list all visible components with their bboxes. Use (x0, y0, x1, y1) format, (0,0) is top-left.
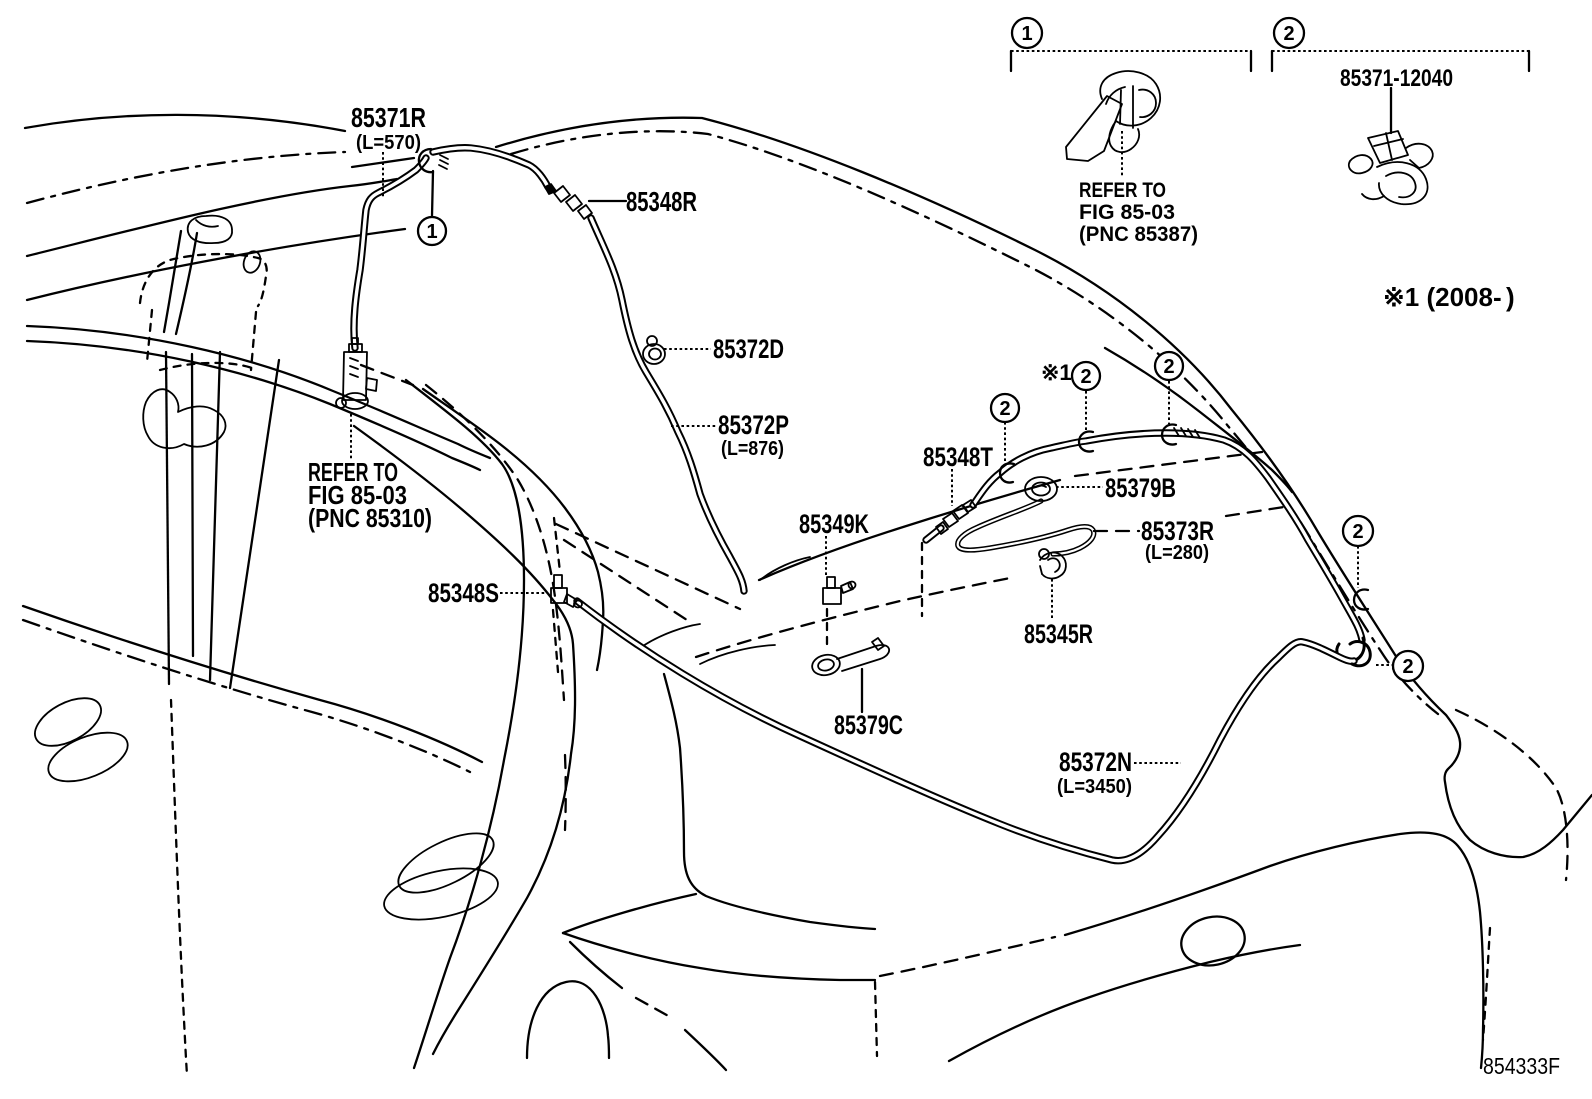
svg-text:): ) (1506, 282, 1515, 312)
svg-text:REFER TO: REFER TO (1079, 179, 1166, 202)
svg-text:85371R: 85371R (351, 102, 426, 133)
svg-text:2: 2 (999, 398, 1010, 420)
svg-text:※1: ※1 (1041, 360, 1072, 385)
svg-text:85372D: 85372D (713, 334, 784, 364)
svg-text:85371-12040: 85371-12040 (1340, 65, 1453, 92)
svg-text:85379B: 85379B (1105, 473, 1176, 503)
svg-text:85348R: 85348R (626, 186, 697, 217)
svg-text:854333F: 854333F (1483, 1053, 1560, 1079)
svg-text:85372P: 85372P (718, 410, 789, 440)
svg-text:85348T: 85348T (923, 442, 993, 472)
svg-text:85372N: 85372N (1059, 747, 1132, 777)
svg-text:2: 2 (1352, 521, 1363, 543)
svg-text:85345R: 85345R (1024, 619, 1093, 649)
svg-text:85379C: 85379C (834, 710, 903, 740)
svg-text:(L=570): (L=570) (356, 132, 421, 154)
svg-text:1: 1 (426, 221, 437, 243)
svg-text:1: 1 (1021, 23, 1032, 45)
svg-text:(L=3450): (L=3450) (1057, 776, 1132, 798)
svg-text:85349K: 85349K (799, 509, 869, 539)
svg-text:※1 (2008-: ※1 (2008- (1383, 282, 1502, 312)
svg-text:2: 2 (1163, 356, 1174, 378)
svg-text:(PNC 85387): (PNC 85387) (1079, 223, 1198, 246)
svg-text:2: 2 (1283, 23, 1294, 45)
svg-text:FIG 85-03: FIG 85-03 (1079, 201, 1175, 224)
svg-text:(L=280): (L=280) (1145, 542, 1209, 564)
svg-text:2: 2 (1402, 656, 1413, 678)
svg-text:(L=876): (L=876) (721, 438, 784, 460)
svg-text:85348S: 85348S (428, 578, 499, 608)
svg-text:2: 2 (1080, 366, 1091, 388)
svg-text:(PNC 85310): (PNC 85310) (308, 503, 432, 533)
